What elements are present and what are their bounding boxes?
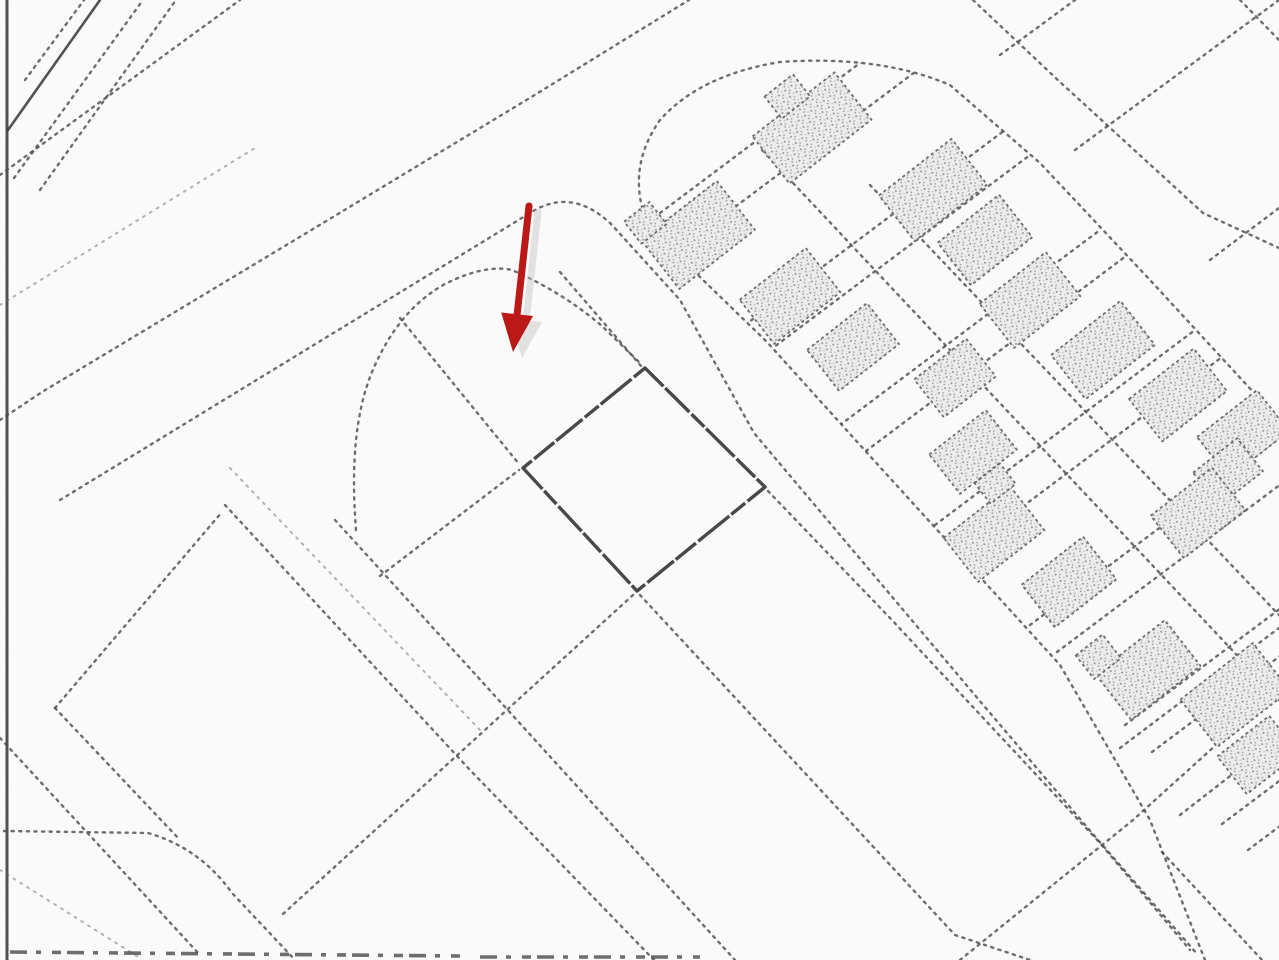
- scan-grain-texture: [0, 0, 1279, 960]
- plat-map-canvas: [0, 0, 1279, 960]
- scanned-plat-map-page: [0, 0, 1279, 960]
